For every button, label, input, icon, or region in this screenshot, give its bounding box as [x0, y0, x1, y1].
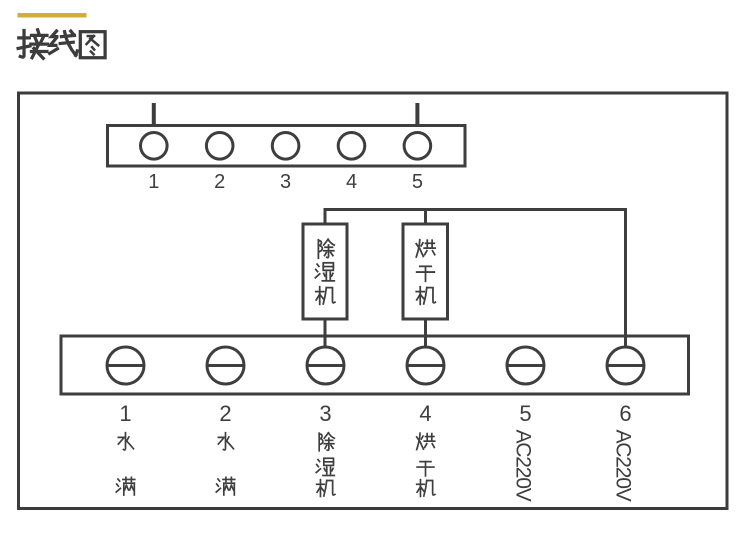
svg-text:4: 4 [419, 401, 431, 426]
svg-text:4: 4 [346, 171, 357, 193]
svg-text:1: 1 [119, 401, 131, 426]
svg-text:6: 6 [619, 401, 631, 426]
svg-text:AC220V: AC220V [512, 429, 535, 501]
svg-text:AC220V: AC220V [612, 429, 635, 501]
svg-text:5: 5 [412, 171, 423, 193]
svg-text:2: 2 [219, 401, 231, 426]
svg-text:3: 3 [319, 401, 331, 426]
svg-text:1: 1 [148, 171, 159, 193]
svg-text:2: 2 [214, 171, 225, 193]
svg-text:5: 5 [519, 401, 531, 426]
svg-text:3: 3 [280, 171, 291, 193]
